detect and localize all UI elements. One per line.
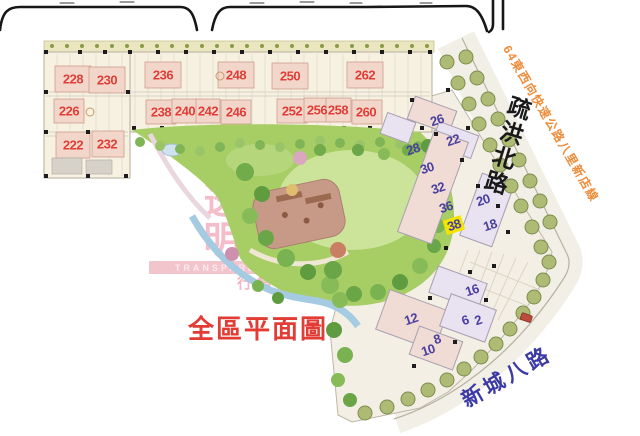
site-plan-screenshot: 透明 TRANSPARENT 行情通買賣價 bbox=[0, 0, 640, 436]
unit-label-232: 232 bbox=[97, 138, 117, 151]
unit-label-236: 236 bbox=[153, 69, 173, 82]
unit-label-238: 238 bbox=[151, 106, 171, 119]
unit-label-230: 230 bbox=[97, 74, 117, 87]
page-title: 全區平面圖 bbox=[188, 309, 328, 346]
unit-label-256: 256 bbox=[307, 104, 327, 117]
top-road-lines bbox=[0, 0, 503, 32]
unit-label-258: 258 bbox=[328, 104, 348, 117]
unit-label-260: 260 bbox=[356, 106, 376, 119]
unit-label-226: 226 bbox=[59, 105, 79, 118]
unit-label-252: 252 bbox=[282, 105, 302, 118]
unit-label-250: 250 bbox=[280, 70, 300, 83]
unit-label-248: 248 bbox=[226, 69, 246, 82]
unit-label-242: 242 bbox=[198, 105, 218, 118]
unit-label-240: 240 bbox=[175, 105, 195, 118]
unit-label-222: 222 bbox=[63, 139, 83, 152]
unit-label-262: 262 bbox=[355, 69, 375, 82]
unit-label-228: 228 bbox=[63, 73, 83, 86]
unit-label-246: 246 bbox=[226, 106, 246, 119]
